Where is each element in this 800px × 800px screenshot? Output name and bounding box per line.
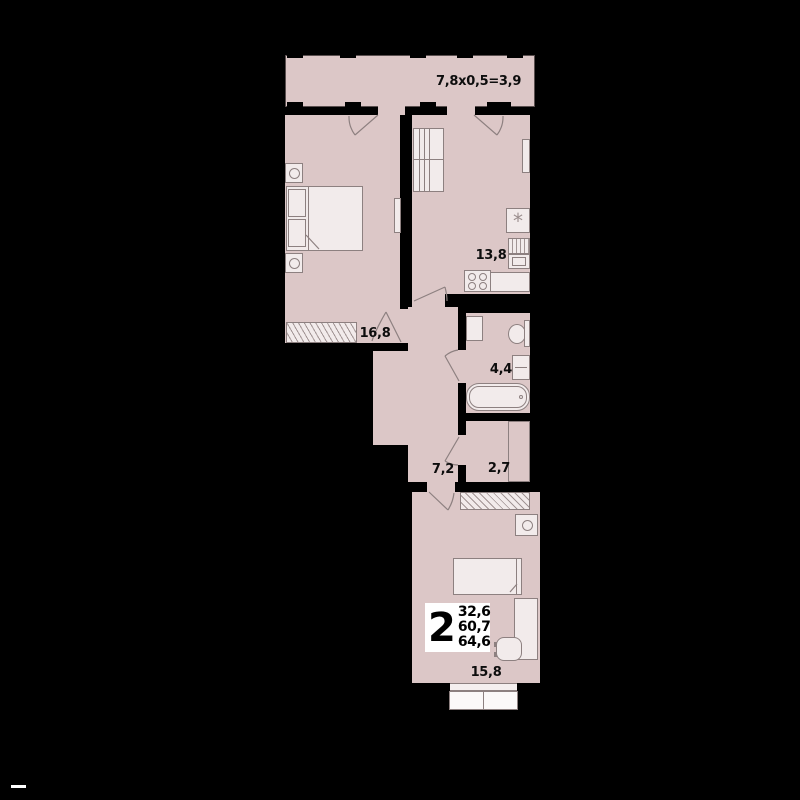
door-swing-kitchen-balcony [474,115,503,135]
total-area-value: 60,7 [458,620,491,635]
door-swing-bathroom [445,350,459,381]
living-area-value: 32,6 [458,605,491,620]
door-swing-storage [445,437,459,465]
door-swing-kitchen-hall [414,287,447,301]
door-swing-bedroom-balcony [349,115,378,135]
door-swing-overlay [0,0,800,800]
bed-cover-fold [306,235,319,249]
hallway-area-label: 7,2 [425,462,461,477]
balcony-label: 7,8x0,5=3,9 [436,74,516,89]
bathroom-area-label: 4,4 [483,362,519,377]
bed2-cover-fold [510,584,517,592]
total-area-with-balcony-value: 64,6 [458,635,491,650]
corner-mark [11,785,26,788]
room-count: 2 [425,606,455,650]
bedroom-area-label: 16,8 [355,326,395,341]
living-area-label: 15,8 [466,665,506,680]
storage-area-label: 2,7 [481,461,517,476]
kitchen-area-label: 13,8 [471,248,511,263]
floor-plan: * [0,0,800,800]
door-swing-living [429,492,454,510]
apartment-type-badge: 2 32,6 60,7 64,6 [425,603,490,652]
